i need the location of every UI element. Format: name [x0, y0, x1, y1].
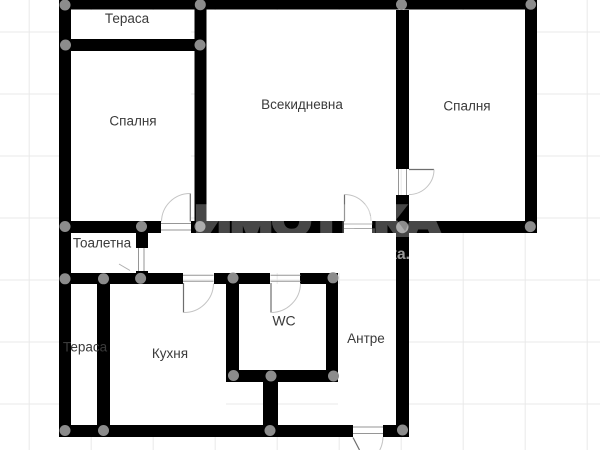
svg-text:имотека.: имотека.: [343, 246, 410, 263]
svg-text:ИМОТЕКА: ИМОТЕКА: [195, 197, 441, 244]
svg-text:Кухня: Кухня: [152, 346, 188, 361]
svg-text:Спалня: Спалня: [443, 99, 490, 114]
svg-text:Антре: Антре: [347, 331, 385, 346]
svg-text:Тераса: Тераса: [63, 340, 108, 355]
svg-text:Тераса: Тераса: [105, 11, 150, 26]
svg-text:Тоалетна: Тоалетна: [73, 236, 132, 251]
svg-text:Спалня: Спалня: [109, 114, 156, 129]
svg-text:WC: WC: [272, 312, 295, 328]
svg-text:Всекидневна: Всекидневна: [261, 97, 343, 112]
